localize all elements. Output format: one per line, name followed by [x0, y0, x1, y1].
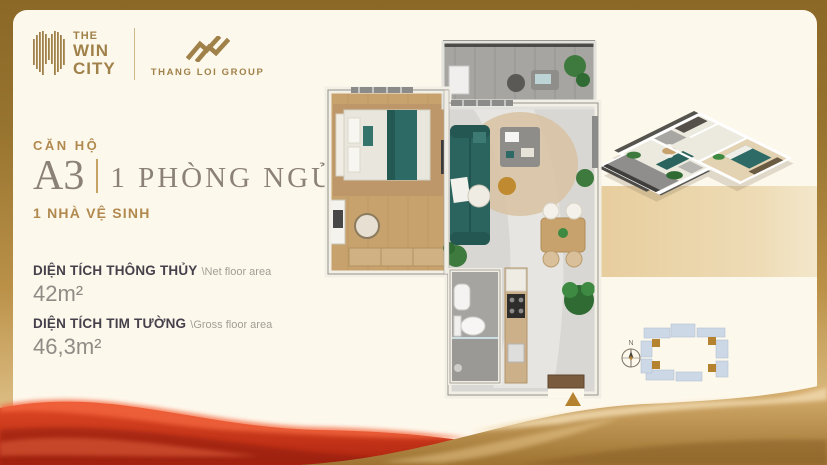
apartment-3d-view [592, 90, 810, 286]
net-area-label: DIỆN TÍCH THÔNG THỦY [33, 263, 198, 278]
net-area-sublabel: \Net floor area [202, 266, 272, 278]
unit-separator [96, 159, 98, 193]
compass-north-label: N [628, 340, 633, 347]
bed-headboard [336, 114, 344, 176]
unit-code: A3 [33, 155, 84, 197]
win-city-line-3: CITY [73, 60, 116, 77]
net-area-value: 42m² [33, 281, 272, 307]
kitchen-sink [508, 344, 524, 362]
area-info: DIỆN TÍCH THÔNG THỦY\Net floor area 42m²… [33, 262, 272, 368]
logo-divider [134, 28, 135, 80]
header-logos: THE WIN CITY THANG LOI GROUP [33, 28, 264, 80]
win-city-wordmark: THE WIN CITY [73, 31, 116, 77]
win-city-line-2: WIN [73, 42, 116, 59]
gross-area-value: 46,3m² [33, 334, 272, 360]
thang-loi-logo-icon [186, 36, 230, 62]
ottoman [355, 214, 379, 238]
gross-area-row: DIỆN TÍCH TIM TƯỜNG\Gross floor area 46,… [33, 315, 272, 360]
brochure-page: THE WIN CITY THANG LOI GROUP CĂN HỘ A3 1… [0, 0, 827, 465]
net-area-row: DIỆN TÍCH THÔNG THỦY\Net floor area 42m² [33, 262, 272, 307]
compass-icon: N [622, 340, 640, 367]
site-buildings [641, 324, 728, 381]
wardrobe [349, 248, 445, 266]
unit-name-row: A3 1 PHÒNG NGỦ [33, 155, 335, 197]
cooktop [507, 294, 525, 318]
silk-ribbons [0, 378, 827, 465]
thang-loi-logo: THANG LOI GROUP [151, 30, 265, 78]
pouf [498, 177, 516, 195]
toilet [461, 317, 485, 335]
site-highlight-units [652, 337, 716, 372]
win-city-logo-icon [33, 31, 65, 77]
thang-loi-label: THANG LOI GROUP [151, 67, 265, 78]
armchair [468, 185, 490, 207]
gross-area-sublabel: \Gross floor area [190, 319, 272, 331]
shower-drain [454, 364, 462, 372]
gross-area-label: DIỆN TÍCH TIM TƯỜNG [33, 316, 186, 331]
unit-title-block: CĂN HỘ A3 1 PHÒNG NGỦ 1 NHÀ VỆ SINH [33, 138, 335, 221]
unit-category: CĂN HỘ [33, 138, 335, 153]
the-win-city-logo: THE WIN CITY [33, 31, 116, 77]
unit-bedrooms: 1 PHÒNG NGỦ [110, 160, 335, 193]
unit-bathrooms: 1 NHÀ VỆ SINH [33, 205, 335, 221]
bathroom-sink [454, 284, 470, 310]
floor-plan-top-view [323, 28, 607, 410]
